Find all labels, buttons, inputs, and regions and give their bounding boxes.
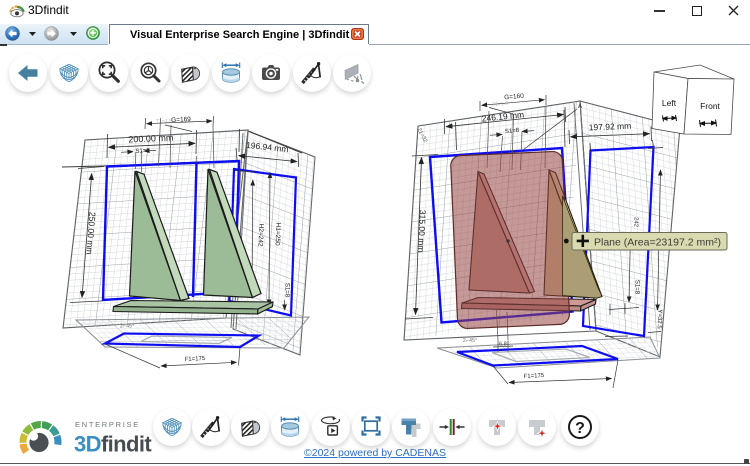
- svg-text:T1=1.5: T1=1.5: [156, 118, 172, 125]
- svg-text:200.00 mm: 200.00 mm: [128, 132, 173, 144]
- svg-text:Plane (Area=23197.2 mm²): Plane (Area=23197.2 mm²): [594, 237, 721, 249]
- svg-text:2⌐45°: 2⌐45°: [463, 338, 478, 344]
- svg-text:Front: Front: [700, 101, 720, 111]
- svg-text:Left: Left: [662, 98, 677, 108]
- svg-text:A: A: [578, 104, 582, 110]
- svg-text:F1=175: F1=175: [185, 356, 206, 363]
- svg-text:Y=32.5: Y=32.5: [656, 309, 663, 329]
- svg-text:ENTERPRISE: ENTERPRISE: [75, 420, 140, 429]
- svg-text:H1=250: H1=250: [273, 222, 281, 246]
- svg-text:S1=8: S1=8: [135, 148, 150, 155]
- svg-text:T1=1.5: T1=1.5: [492, 101, 508, 108]
- svg-text:315.00 mm: 315.00 mm: [416, 210, 428, 253]
- svg-text:G=169: G=169: [171, 116, 191, 124]
- svg-text:F1=175: F1=175: [524, 373, 545, 380]
- svg-text:?: ?: [575, 420, 585, 437]
- svg-text:197.92 mm: 197.92 mm: [588, 121, 631, 133]
- svg-text:S1=8: S1=8: [634, 280, 640, 295]
- svg-text:2⌐45°: 2⌐45°: [120, 324, 135, 330]
- svg-text:S1=8: S1=8: [284, 283, 290, 298]
- svg-text:242: 242: [632, 217, 638, 228]
- svg-text:H2=242: H2=242: [256, 223, 264, 247]
